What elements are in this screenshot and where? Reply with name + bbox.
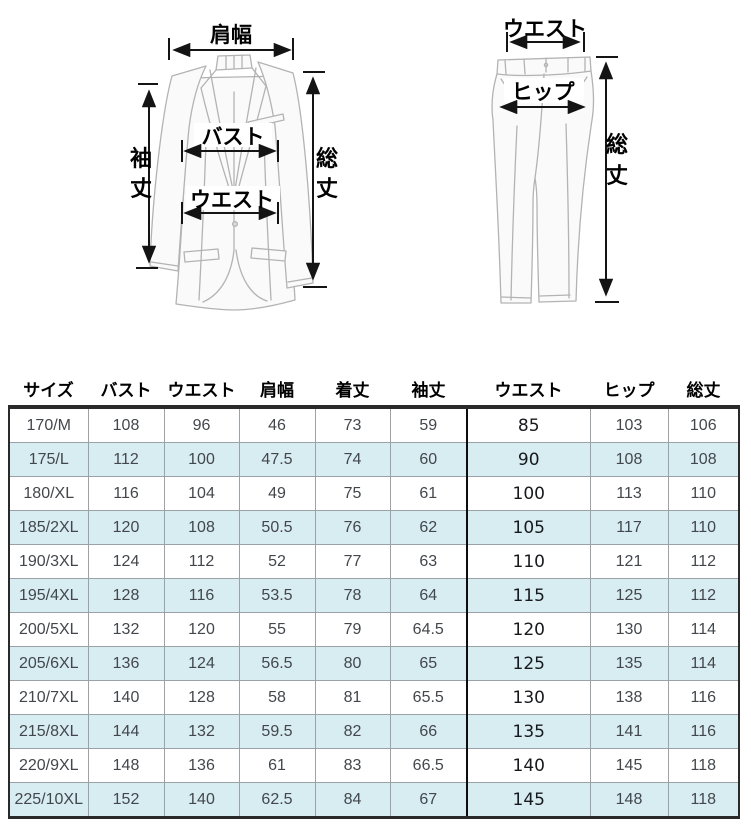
- measurement-value-cell: 78: [315, 579, 390, 613]
- measurement-value-cell: 65.5: [390, 681, 467, 715]
- size-value-cell: 205/6XL: [9, 647, 88, 681]
- measurement-value-cell: 76: [315, 511, 390, 545]
- measurement-value-cell: 112: [668, 545, 739, 579]
- table-row: 180/XL116104497561100113110: [9, 477, 739, 511]
- col-header-total-length: 総丈: [668, 372, 739, 407]
- measurement-value-cell: 130: [590, 613, 668, 647]
- jacket-waist-label: ウエスト: [190, 189, 274, 212]
- measurement-value-cell: 81: [315, 681, 390, 715]
- measurement-value-cell: 84: [315, 783, 390, 818]
- measurement-value-cell: 108: [164, 511, 239, 545]
- measurement-value-cell: 66.5: [390, 749, 467, 783]
- table-row: 195/4XL12811653.57864115125112: [9, 579, 739, 613]
- measurement-value-cell: 60: [390, 443, 467, 477]
- table-row: 225/10XL15214062.58467145148118: [9, 783, 739, 818]
- table-row: 215/8XL14413259.58266135141116: [9, 715, 739, 749]
- measurement-value-cell: 83: [315, 749, 390, 783]
- measurement-value-cell: 65: [390, 647, 467, 681]
- measurement-value-cell: 106: [668, 407, 739, 443]
- measurement-value-cell: 116: [668, 681, 739, 715]
- measurement-value-cell: 49: [239, 477, 315, 511]
- col-header-bust: バスト: [88, 372, 164, 407]
- measurement-diagram: 肩幅 バスト ウエスト 袖 丈 総 丈: [0, 0, 751, 350]
- measurement-value-cell: 144: [88, 715, 164, 749]
- measurement-value-cell: 132: [88, 613, 164, 647]
- measurement-value-cell: 117: [590, 511, 668, 545]
- measurement-value-cell: 145: [467, 783, 590, 818]
- measurement-value-cell: 110: [467, 545, 590, 579]
- pants-total-label-char1: 総: [606, 132, 628, 157]
- size-value-cell: 220/9XL: [9, 749, 88, 783]
- measurement-value-cell: 132: [164, 715, 239, 749]
- measurement-value-cell: 140: [467, 749, 590, 783]
- col-header-sleeve: 袖丈: [390, 372, 467, 407]
- size-value-cell: 195/4XL: [9, 579, 88, 613]
- measurement-value-cell: 53.5: [239, 579, 315, 613]
- size-value-cell: 225/10XL: [9, 783, 88, 818]
- measurement-value-cell: 124: [88, 545, 164, 579]
- col-header-size: サイズ: [9, 372, 88, 407]
- measurement-value-cell: 140: [164, 783, 239, 818]
- measurement-value-cell: 77: [315, 545, 390, 579]
- table-row: 205/6XL13612456.58065125135114: [9, 647, 739, 681]
- size-value-cell: 210/7XL: [9, 681, 88, 715]
- measurement-value-cell: 112: [88, 443, 164, 477]
- size-value-cell: 215/8XL: [9, 715, 88, 749]
- measurement-value-cell: 62: [390, 511, 467, 545]
- measurement-value-cell: 66: [390, 715, 467, 749]
- measurement-value-cell: 140: [88, 681, 164, 715]
- measurement-value-cell: 135: [590, 647, 668, 681]
- measurement-value-cell: 67: [390, 783, 467, 818]
- measurement-value-cell: 80: [315, 647, 390, 681]
- measurement-value-cell: 116: [88, 477, 164, 511]
- measurement-value-cell: 103: [590, 407, 668, 443]
- pants-hip-arrow: ヒップ: [502, 78, 584, 107]
- size-table-body: 170/M1089646735985103106175/L11210047.57…: [9, 407, 739, 818]
- size-value-cell: 190/3XL: [9, 545, 88, 579]
- size-value-cell: 200/5XL: [9, 613, 88, 647]
- pants-hip-label: ヒップ: [512, 81, 576, 104]
- measurement-value-cell: 115: [467, 579, 590, 613]
- measurement-value-cell: 138: [590, 681, 668, 715]
- jacket-shoulder-label: 肩幅: [210, 23, 252, 47]
- measurement-value-cell: 46: [239, 407, 315, 443]
- measurement-value-cell: 50.5: [239, 511, 315, 545]
- size-value-cell: 175/L: [9, 443, 88, 477]
- measurement-value-cell: 108: [590, 443, 668, 477]
- size-value-cell: 170/M: [9, 407, 88, 443]
- measurement-value-cell: 64.5: [390, 613, 467, 647]
- measurement-value-cell: 136: [164, 749, 239, 783]
- measurement-value-cell: 79: [315, 613, 390, 647]
- measurement-value-cell: 59.5: [239, 715, 315, 749]
- measurement-value-cell: 108: [668, 443, 739, 477]
- measurement-value-cell: 120: [467, 613, 590, 647]
- measurement-value-cell: 128: [164, 681, 239, 715]
- measurement-value-cell: 118: [668, 783, 739, 818]
- jacket-total-label-char2: 丈: [316, 176, 338, 201]
- size-value-cell: 185/2XL: [9, 511, 88, 545]
- measurement-value-cell: 113: [590, 477, 668, 511]
- measurement-value-cell: 82: [315, 715, 390, 749]
- pants-total-label-char2: 丈: [606, 163, 628, 188]
- measurement-value-cell: 73: [315, 407, 390, 443]
- jacket-shoulder-arrow: 肩幅: [169, 23, 293, 60]
- measurement-value-cell: 114: [668, 613, 739, 647]
- measurement-value-cell: 148: [590, 783, 668, 818]
- measurement-value-cell: 110: [668, 511, 739, 545]
- measurement-value-cell: 61: [390, 477, 467, 511]
- measurement-value-cell: 112: [668, 579, 739, 613]
- measurement-value-cell: 120: [164, 613, 239, 647]
- col-header-shoulder: 肩幅: [239, 372, 315, 407]
- pants-total-length-arrow: 総 丈: [595, 57, 628, 302]
- table-header-row: サイズ バスト ウエスト 肩幅 着丈 袖丈 ウエスト ヒップ 総丈: [9, 372, 739, 407]
- measurement-value-cell: 100: [164, 443, 239, 477]
- size-table: サイズ バスト ウエスト 肩幅 着丈 袖丈 ウエスト ヒップ 総丈 170/M1…: [8, 372, 738, 819]
- measurement-value-cell: 59: [390, 407, 467, 443]
- measurement-value-cell: 112: [164, 545, 239, 579]
- pants-waist-label: ウエスト: [503, 18, 587, 41]
- measurement-value-cell: 135: [467, 715, 590, 749]
- measurement-value-cell: 128: [88, 579, 164, 613]
- col-header-jacket-waist: ウエスト: [164, 372, 239, 407]
- measurement-value-cell: 74: [315, 443, 390, 477]
- measurement-value-cell: 148: [88, 749, 164, 783]
- measurement-value-cell: 110: [668, 477, 739, 511]
- table-row: 210/7XL140128588165.5130138116: [9, 681, 739, 715]
- measurement-value-cell: 118: [668, 749, 739, 783]
- col-header-hip: ヒップ: [590, 372, 668, 407]
- size-value-cell: 180/XL: [9, 477, 88, 511]
- measurement-value-cell: 105: [467, 511, 590, 545]
- col-header-body-length: 着丈: [315, 372, 390, 407]
- measurement-value-cell: 104: [164, 477, 239, 511]
- measurement-value-cell: 90: [467, 443, 590, 477]
- table-row: 220/9XL148136618366.5140145118: [9, 749, 739, 783]
- jacket-sleeve-label-char1: 袖: [130, 146, 152, 171]
- measurement-value-cell: 116: [164, 579, 239, 613]
- measurement-value-cell: 64: [390, 579, 467, 613]
- jacket-bust-label: バスト: [202, 126, 265, 149]
- col-header-pants-waist: ウエスト: [467, 372, 590, 407]
- measurement-value-cell: 121: [590, 545, 668, 579]
- measurement-value-cell: 63: [390, 545, 467, 579]
- measurement-value-cell: 58: [239, 681, 315, 715]
- measurement-value-cell: 116: [668, 715, 739, 749]
- measurement-value-cell: 120: [88, 511, 164, 545]
- measurement-value-cell: 141: [590, 715, 668, 749]
- jacket-illustration: [150, 55, 313, 310]
- measurement-value-cell: 56.5: [239, 647, 315, 681]
- measurement-value-cell: 75: [315, 477, 390, 511]
- jacket-sleeve-label-char2: 丈: [130, 176, 152, 201]
- measurement-value-cell: 114: [668, 647, 739, 681]
- measurement-value-cell: 96: [164, 407, 239, 443]
- table-row: 190/3XL124112527763110121112: [9, 545, 739, 579]
- measurement-value-cell: 85: [467, 407, 590, 443]
- measurement-value-cell: 108: [88, 407, 164, 443]
- table-row: 185/2XL12010850.57662105117110: [9, 511, 739, 545]
- measurement-value-cell: 61: [239, 749, 315, 783]
- jacket-total-label-char1: 総: [316, 146, 338, 171]
- measurement-value-cell: 145: [590, 749, 668, 783]
- table-row: 175/L11210047.5746090108108: [9, 443, 739, 477]
- table-row: 170/M1089646735985103106: [9, 407, 739, 443]
- measurement-value-cell: 100: [467, 477, 590, 511]
- measurement-value-cell: 62.5: [239, 783, 315, 818]
- measurement-value-cell: 55: [239, 613, 315, 647]
- measurement-value-cell: 47.5: [239, 443, 315, 477]
- table-row: 200/5XL132120557964.5120130114: [9, 613, 739, 647]
- measurement-value-cell: 52: [239, 545, 315, 579]
- measurement-value-cell: 152: [88, 783, 164, 818]
- measurement-value-cell: 124: [164, 647, 239, 681]
- size-chart-page: 肩幅 バスト ウエスト 袖 丈 総 丈: [0, 0, 751, 826]
- measurement-value-cell: 136: [88, 647, 164, 681]
- pants-waist-arrow: ウエスト: [503, 18, 587, 52]
- measurement-value-cell: 130: [467, 681, 590, 715]
- measurement-value-cell: 125: [467, 647, 590, 681]
- measurement-value-cell: 125: [590, 579, 668, 613]
